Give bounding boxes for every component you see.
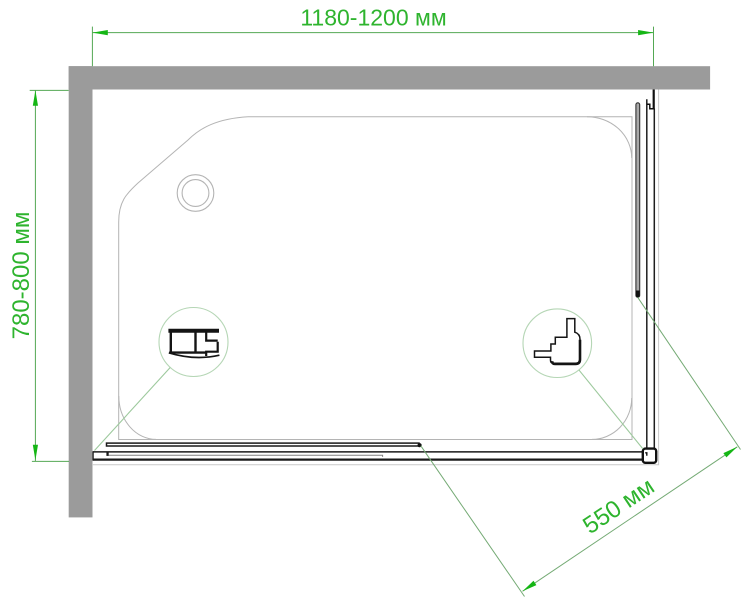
svg-text:1180-1200 мм: 1180-1200 мм [300, 5, 446, 31]
svg-text:780-800 мм: 780-800 мм [8, 212, 35, 340]
